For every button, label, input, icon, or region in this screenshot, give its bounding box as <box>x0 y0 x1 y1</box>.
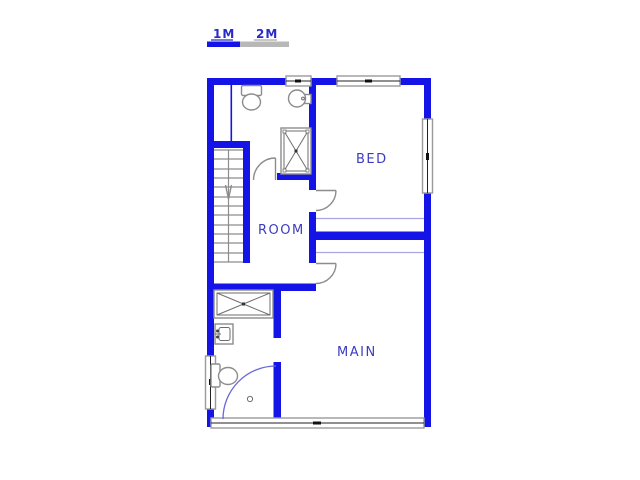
wall-main-left-upper <box>274 288 282 338</box>
window-top-large <box>337 76 400 86</box>
wall-middle-thick <box>309 232 424 241</box>
window-right <box>423 119 433 193</box>
floor-plan-canvas: 1M 2M <box>0 0 640 480</box>
door-bathroom-to-room <box>254 158 276 180</box>
door-room-to-main <box>316 264 336 284</box>
room-label-room: ROOM <box>258 223 305 238</box>
shower-tray-icon <box>281 128 311 174</box>
room-label-bed: BED <box>356 152 388 167</box>
scale-bar-segment-blue <box>207 42 240 48</box>
door-bed <box>316 191 336 211</box>
toilet-top-icon <box>242 86 262 111</box>
toilet-bottom-icon <box>211 364 238 387</box>
floor-plan-drawing: 1M 2M <box>0 0 640 480</box>
scale-label-2m: 2M <box>256 27 278 41</box>
window-top-small <box>286 76 311 86</box>
basin-bottom-icon <box>215 324 233 344</box>
wall-main-left-lower <box>274 362 282 420</box>
room-label-main: MAIN <box>337 345 377 360</box>
door-knob-icon <box>247 396 252 401</box>
wall-bathroom-partition-thin <box>231 85 233 141</box>
stairs-icon <box>214 150 243 262</box>
scale-bar-segment-gray <box>240 42 289 48</box>
bathtub-icon <box>214 290 273 318</box>
scale-bar: 1M 2M <box>207 27 289 47</box>
basin-top-icon <box>289 90 312 107</box>
wall-stair-right <box>243 141 250 263</box>
scale-label-1m: 1M <box>213 27 235 41</box>
window-bottom <box>211 418 424 428</box>
